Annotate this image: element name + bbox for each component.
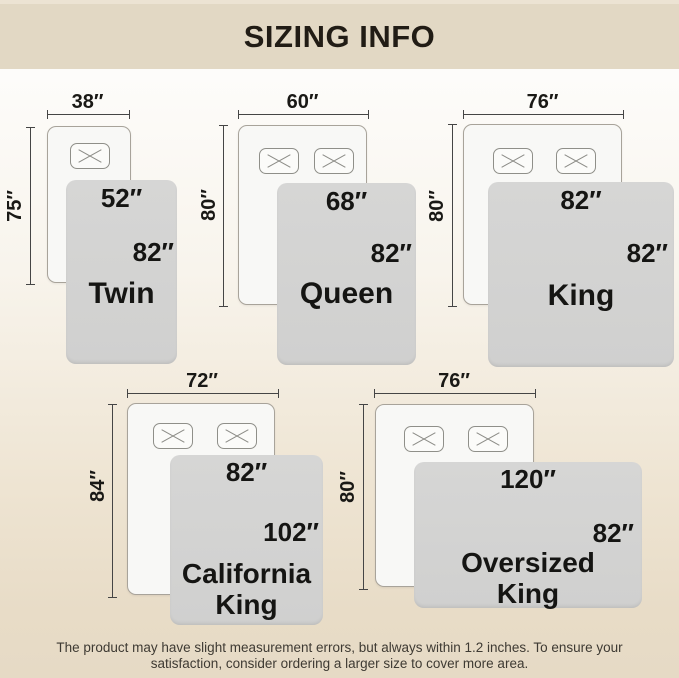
- pillow-x-icon: [494, 149, 532, 173]
- header-bar: SIZING INFO: [0, 0, 679, 69]
- pillow: [556, 148, 596, 174]
- length-dimension-line: [108, 404, 117, 598]
- pillow-x-icon: [557, 149, 595, 173]
- blanket-length-label: 82″: [627, 238, 668, 269]
- pillow: [153, 423, 193, 449]
- bed-length-label: 75″: [5, 184, 25, 228]
- pillow: [259, 148, 299, 174]
- blanket-length-label: 82″: [133, 237, 174, 268]
- sizing-info-page: SIZING INFO 38″ 75″ 52″ 82″ Twin 60″ 80″…: [0, 0, 679, 678]
- pillow-x-icon: [218, 424, 256, 448]
- width-dimension-line: [127, 389, 279, 398]
- width-dimension-line: [47, 110, 130, 119]
- width-dimension-line: [238, 110, 369, 119]
- length-dimension-line: [26, 127, 35, 285]
- pillow-x-icon: [260, 149, 298, 173]
- blanket-width-label: 52″: [66, 183, 177, 214]
- bed-length-label: 84″: [88, 464, 108, 508]
- length-dimension-line: [219, 125, 228, 307]
- size-name-label: Oversized King: [443, 547, 613, 609]
- pillow: [70, 143, 110, 169]
- pillow: [314, 148, 354, 174]
- length-dimension-line: [359, 404, 368, 590]
- width-dimension-line: [374, 389, 536, 398]
- pillow: [493, 148, 533, 174]
- blanket-width-label: 68″: [277, 186, 416, 217]
- size-name-label: California King: [167, 558, 327, 620]
- pillow-x-icon: [315, 149, 353, 173]
- blanket-length-label: 102″: [263, 517, 319, 548]
- blanket-width-label: 82″: [488, 185, 674, 216]
- size-name-label: Twin: [66, 277, 177, 311]
- bed-length-label: 80″: [338, 465, 358, 509]
- blanket-width-label: 82″: [170, 457, 323, 488]
- blanket: 68″ 82″ Queen: [277, 183, 416, 365]
- length-dimension-line: [448, 124, 457, 307]
- bed-length-label: 80″: [199, 183, 219, 227]
- page-title: SIZING INFO: [244, 19, 436, 55]
- bed-length-label: 80″: [427, 184, 447, 228]
- pillow: [217, 423, 257, 449]
- blanket: 52″ 82″ Twin: [66, 180, 177, 364]
- pillow: [404, 426, 444, 452]
- disclaimer-text: The product may have slight measurement …: [29, 640, 651, 672]
- blanket-length-label: 82″: [371, 238, 412, 269]
- pillow-x-icon: [405, 427, 443, 451]
- blanket-length-label: 82″: [593, 518, 634, 549]
- size-name-label: King: [488, 279, 674, 313]
- footer-disclaimer: The product may have slight measurement …: [0, 640, 679, 672]
- pillow-x-icon: [469, 427, 507, 451]
- pillow-x-icon: [71, 144, 109, 168]
- width-dimension-line: [463, 110, 624, 119]
- blanket: 120″ 82″ Oversized King: [414, 462, 642, 608]
- blanket: 82″ 82″ King: [488, 182, 674, 367]
- pillow: [468, 426, 508, 452]
- blanket: 82″ 102″ California King: [170, 455, 323, 625]
- size-name-label: Queen: [277, 277, 416, 311]
- pillow-x-icon: [154, 424, 192, 448]
- blanket-width-label: 120″: [414, 464, 642, 495]
